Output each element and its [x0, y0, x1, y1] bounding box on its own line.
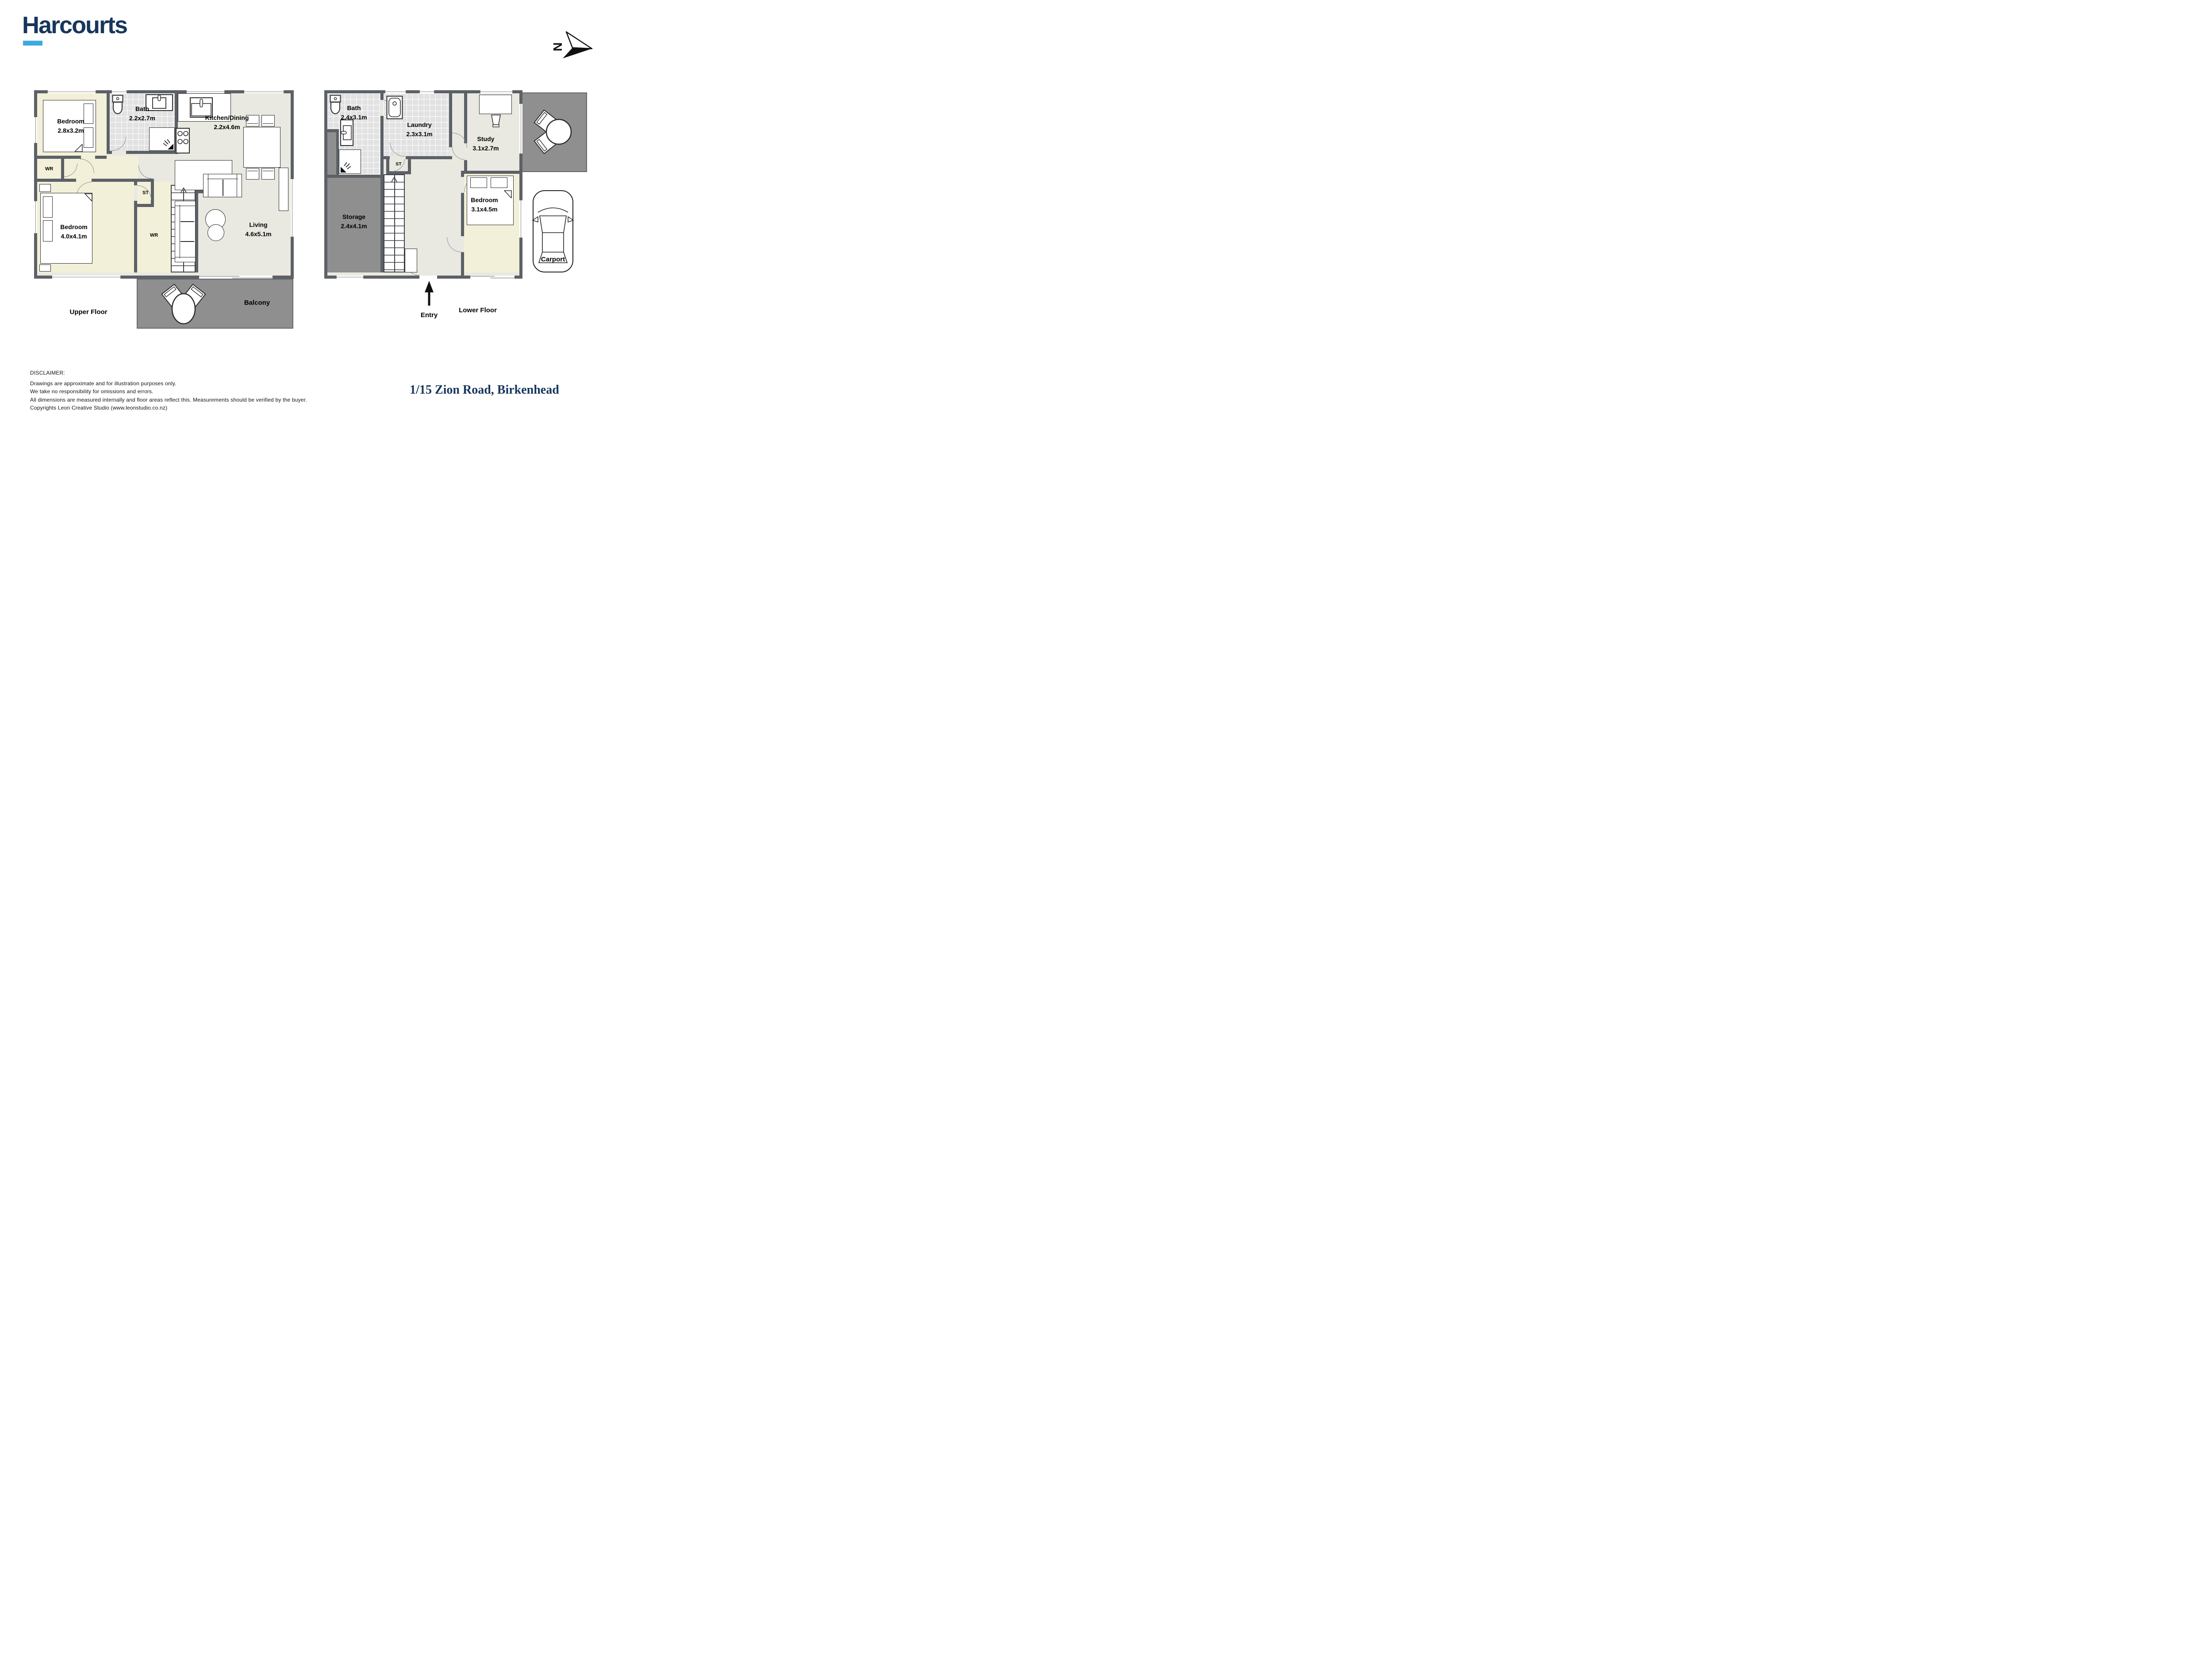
wall — [406, 156, 452, 159]
upper-floor-title: Upper Floor — [53, 307, 124, 318]
bed-pillow — [470, 177, 487, 188]
wall — [384, 156, 390, 159]
window — [385, 90, 406, 93]
stair-landing — [405, 249, 417, 272]
disclaimer-line: We take no responsibility for omissions … — [30, 387, 307, 396]
floorplan-page: Harcourts N — [0, 0, 621, 414]
wall — [107, 93, 110, 154]
vanity-sink-fixture — [340, 119, 353, 146]
window — [34, 117, 37, 143]
wall — [461, 174, 464, 177]
window — [34, 201, 37, 234]
sofa — [175, 201, 196, 262]
room-label-study: Study3.1x2.7m — [460, 134, 512, 153]
bed-fold — [84, 193, 92, 201]
wall — [449, 93, 452, 147]
wall — [386, 171, 411, 174]
room-label-st: ST — [137, 189, 154, 197]
bed-fold — [75, 144, 83, 152]
room-label-bath: Bath2.4x3.1m — [327, 103, 380, 122]
wall — [37, 156, 81, 159]
room-label-bedroom: Bedroom3.1x4.5m — [458, 195, 511, 214]
window — [419, 90, 434, 93]
entry-arrow-icon — [424, 281, 434, 307]
dining-chair — [261, 168, 275, 180]
laundry-tub-fixture — [386, 96, 403, 119]
window — [244, 90, 284, 93]
sofa — [203, 174, 242, 197]
disclaimer-title: DISCLAIMER: — [30, 369, 307, 377]
window — [519, 200, 522, 238]
wall — [95, 156, 107, 159]
storage-floor-strip — [327, 132, 336, 175]
window — [52, 276, 121, 279]
wall — [134, 182, 137, 185]
sliding-door — [519, 103, 522, 154]
balcony: Balcony — [137, 279, 293, 329]
wall — [327, 129, 339, 132]
wall — [461, 171, 519, 174]
wall — [134, 201, 137, 272]
shower-head-icon — [340, 162, 351, 173]
window — [480, 90, 513, 93]
deck — [518, 92, 587, 172]
bed-pillow — [491, 177, 507, 188]
wall — [196, 185, 198, 272]
wall — [380, 93, 384, 100]
wall — [92, 179, 154, 182]
room-label-storage: Storage2.4x4.1m — [327, 212, 380, 231]
window — [186, 90, 225, 93]
nightstand — [39, 184, 51, 192]
disclaimer-line: Copyrights Leon Creative Studio (www.leo… — [30, 404, 307, 412]
brand-logo: Harcourts — [22, 11, 127, 39]
brand-logo-underline — [23, 41, 42, 46]
dining-table — [243, 127, 280, 168]
property-address: 1/15 Zion Road, Birkenhead — [389, 383, 580, 397]
room-label-bath: Bath2.2x2.7m — [110, 104, 175, 123]
window — [111, 90, 127, 93]
wall — [61, 159, 64, 180]
stairs-arrow-icon — [391, 176, 398, 189]
sliding-door — [470, 276, 515, 279]
room-label-bedroom2: Bedroom4.0x4.1m — [41, 222, 107, 241]
balcony-label: Balcony — [230, 298, 284, 308]
room-label-laundry: Laundry2.3x3.1m — [391, 120, 448, 139]
entry-label: Entry — [411, 310, 447, 321]
wall — [126, 151, 175, 154]
wall — [107, 151, 112, 154]
room-label-wr-closet: WR — [37, 165, 61, 173]
disclaimer: DISCLAIMER: Drawings are approximate and… — [30, 369, 307, 412]
coffee-table — [207, 224, 224, 241]
lower-floor-title: Lower Floor — [449, 306, 507, 316]
upper-floor-plan: Bedroom2.8x3.2m Bath2.2x2.7m Kitchen/Din… — [34, 90, 294, 279]
shower-head-icon — [163, 139, 174, 150]
nightstand — [39, 264, 51, 272]
wall — [461, 252, 464, 276]
sliding-door — [199, 276, 273, 279]
wall — [37, 179, 76, 182]
desk — [479, 95, 512, 114]
outdoor-table-set — [159, 281, 208, 326]
north-arrow-icon: N — [552, 29, 595, 62]
room-label-st: ST — [389, 161, 408, 168]
room-label-living: Living4.6x5.1m — [225, 220, 292, 239]
wall — [324, 90, 327, 279]
entry-door-opening — [419, 276, 437, 279]
desk-chair — [489, 114, 503, 128]
wall — [137, 204, 154, 207]
tv-cabinet — [279, 168, 288, 211]
north-letter: N — [552, 42, 565, 51]
wall — [380, 116, 384, 272]
room-label-kitchen-dining: Kitchen/Dining2.2x4.6m — [180, 113, 274, 132]
bed-pillow — [43, 196, 53, 218]
disclaimer-line: Drawings are approximate and for illustr… — [30, 379, 307, 388]
dining-chair — [246, 168, 259, 180]
stairs-arrow-icon — [180, 187, 187, 200]
room-label-bedroom1: Bedroom2.8x3.2m — [38, 117, 104, 135]
room-label-wr-wardrobe: WR — [137, 232, 171, 239]
outdoor-table-set — [531, 107, 576, 157]
lower-floor-plan: Carport — [324, 90, 522, 279]
carport-label: Carport — [529, 255, 577, 265]
disclaimer-line: All dimensions are measured internally a… — [30, 396, 307, 404]
wall — [327, 175, 384, 178]
window — [47, 90, 96, 93]
window — [336, 276, 364, 279]
